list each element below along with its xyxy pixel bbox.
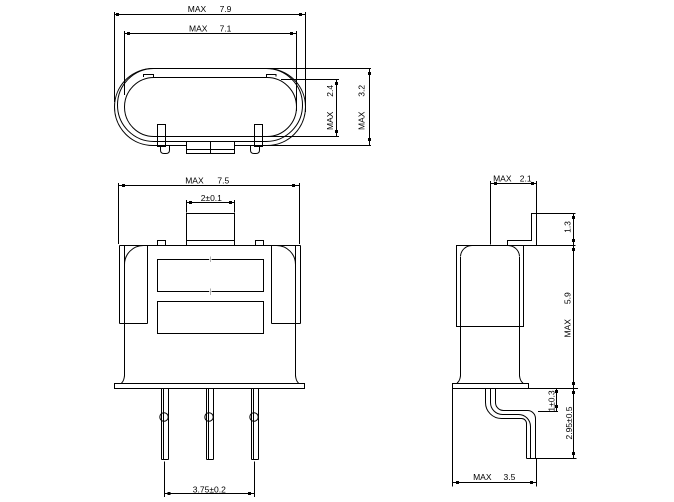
svg-text:5.9: 5.9 [563,292,573,304]
svg-text:2.1: 2.1 [520,174,532,184]
svg-text:2.4: 2.4 [325,85,335,97]
svg-text:MAX: MAX [188,4,207,14]
svg-text:3.2: 3.2 [357,85,367,97]
svg-text:2.95±0.5: 2.95±0.5 [564,406,574,439]
svg-text:MAX: MAX [493,174,512,184]
svg-text:MAX: MAX [357,111,367,130]
svg-text:MAX: MAX [473,472,492,482]
svg-text:1.3: 1.3 [563,221,573,233]
svg-text:7.1: 7.1 [220,23,232,33]
svg-text:MAX: MAX [185,175,204,185]
svg-text:7.5: 7.5 [217,175,229,185]
svg-text:MAX: MAX [189,23,208,33]
svg-text:1±0.3: 1±0.3 [547,390,557,411]
svg-text:MAX: MAX [563,319,573,338]
svg-text:3.75±0.2: 3.75±0.2 [193,484,226,494]
svg-text:MAX: MAX [325,111,335,130]
svg-text:2±0.1: 2±0.1 [201,193,222,203]
svg-text:3.5: 3.5 [503,472,515,482]
svg-text:7.9: 7.9 [220,4,232,14]
